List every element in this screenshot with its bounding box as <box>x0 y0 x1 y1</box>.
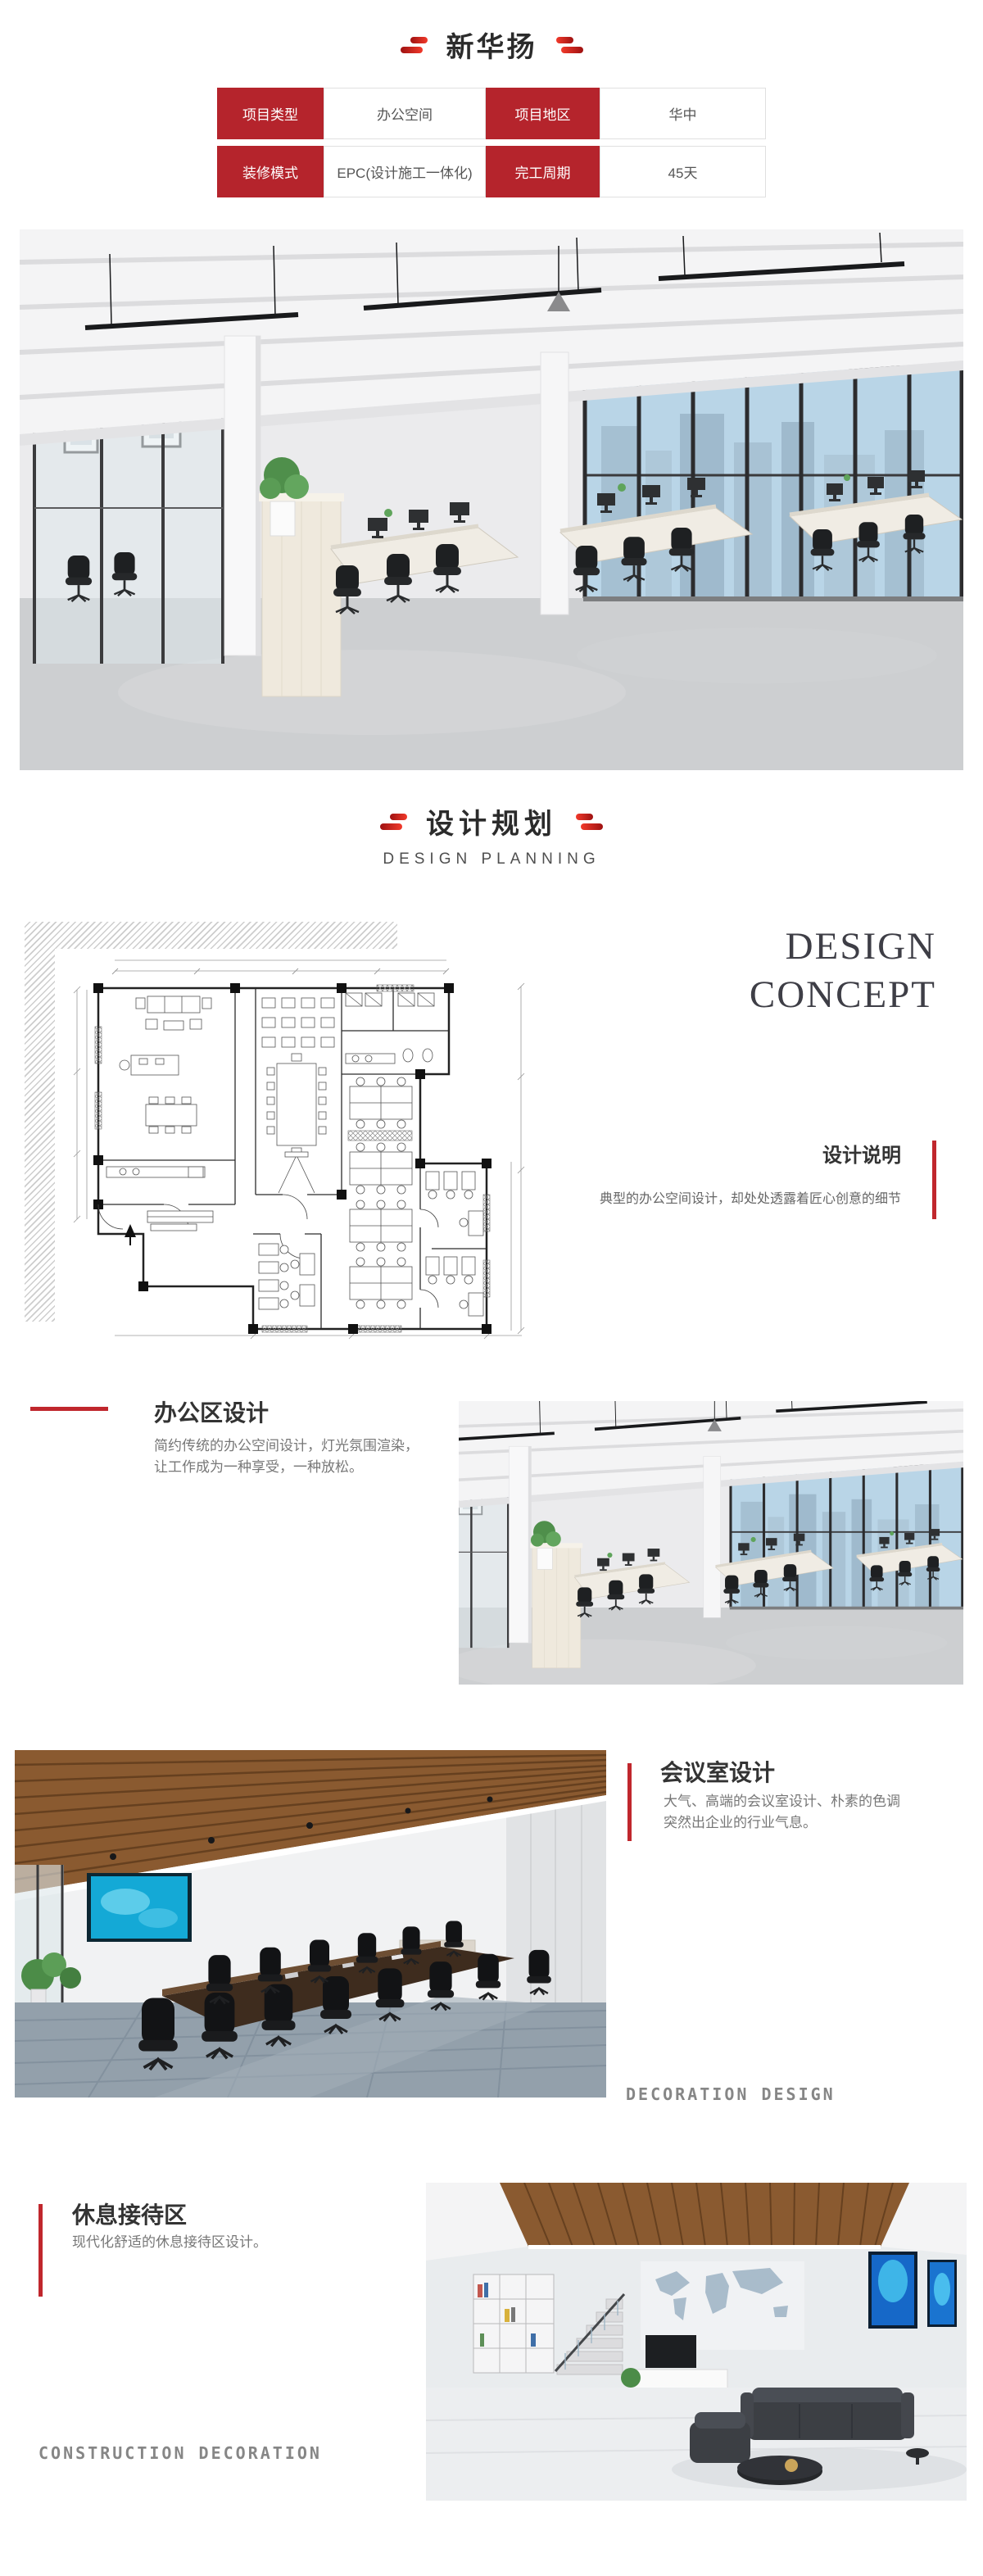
page-header: 新华扬 <box>0 25 983 65</box>
planning-deco-right-icon <box>575 811 603 832</box>
office-area-photo-svg <box>459 1401 963 1685</box>
planning-title-en: DESIGN PLANNING <box>0 850 983 868</box>
design-note-text: 典型的办公空间设计，却处处透露着匠心创意的细节 <box>491 1187 901 1207</box>
info-label-project-type: 项目类型 <box>217 88 324 139</box>
meeting-room-desc-line2: 突然出企业的行业气息。 <box>664 1815 817 1830</box>
office-area-desc-line1: 简约传统的办公空间设计，灯光氛围渲染， <box>154 1438 419 1454</box>
hatch-band-top <box>25 922 397 949</box>
design-concept-title: DESIGN CONCEPT <box>750 923 936 1019</box>
design-note: 设计说明 典型的办公空间设计，却处处透露着匠心创意的细节 <box>491 1139 901 1207</box>
design-concept-line1: DESIGN <box>750 923 936 971</box>
reception-plant <box>621 2368 641 2388</box>
meeting-room-bar <box>627 1763 632 1841</box>
reception-desc: 现代化舒适的休息接待区设计。 <box>72 2232 267 2253</box>
planning-deco-left-icon <box>380 811 408 832</box>
info-value-project-type: 办公空间 <box>324 88 486 139</box>
wall-screen <box>646 2335 696 2368</box>
info-value-mode: EPC(设计施工一体化) <box>324 146 486 197</box>
info-label-region: 项目地区 <box>486 88 600 139</box>
case-study-page: 新华扬 项目类型 办公空间 项目地区 华中 装修模式 EPC(设计施工一体化) … <box>0 0 983 2576</box>
meeting-room-photo <box>15 1750 606 2098</box>
hero-office-photo <box>20 229 963 770</box>
office-area-photo <box>459 1401 963 1685</box>
meeting-room-desc-line1: 大气、高端的会议室设计、朴素的色调 <box>664 1794 900 1809</box>
info-value-duration: 45天 <box>600 146 766 197</box>
reception-svg <box>426 2183 967 2501</box>
info-label-duration: 完工周期 <box>486 146 600 197</box>
project-info-table: 项目类型 办公空间 项目地区 华中 装修模式 EPC(设计施工一体化) 完工周期… <box>217 88 766 197</box>
bookshelf <box>473 2274 554 2373</box>
meeting-room-desc: 大气、高端的会议室设计、朴素的色调 突然出企业的行业气息。 <box>664 1791 900 1834</box>
office-area-desc-line2: 让工作成为一种享受，一种放松。 <box>154 1459 363 1475</box>
windows <box>583 365 963 601</box>
floor-plan-svg <box>66 949 537 1344</box>
design-concept-line2: CONCEPT <box>750 971 936 1019</box>
floor-plan <box>66 949 537 1344</box>
reception-photo <box>426 2183 967 2501</box>
meeting-room-svg <box>15 1750 606 2098</box>
reception-bar <box>39 2204 43 2297</box>
reception-heading: 休息接待区 <box>72 2197 187 2230</box>
page-title: 新华扬 <box>446 25 537 65</box>
decoration-design-caption: DECORATION DESIGN <box>626 2084 836 2104</box>
office-scene-svg <box>20 229 963 770</box>
office-scene <box>20 229 963 770</box>
info-value-region: 华中 <box>600 88 766 139</box>
hatch-band-left <box>25 922 55 1322</box>
presentation-screen <box>87 1873 192 1942</box>
office-area-heading: 办公区设计 <box>154 1395 269 1428</box>
title-deco-left-icon <box>401 34 428 56</box>
blue-artworks <box>868 2252 957 2329</box>
office-area-desc: 简约传统的办公空间设计，灯光氛围渲染， 让工作成为一种享受，一种放松。 <box>154 1435 419 1478</box>
carpet <box>15 1996 606 2098</box>
meeting-room-heading: 会议室设计 <box>660 1755 775 1788</box>
office-area-line <box>30 1407 108 1411</box>
planning-title-cn: 设计规划 <box>426 801 557 841</box>
construction-decoration-caption: CONSTRUCTION DECORATION <box>39 2443 322 2463</box>
planning-section-header: 设计规划 <box>0 801 983 841</box>
design-note-heading: 设计说明 <box>491 1139 901 1168</box>
info-label-mode: 装修模式 <box>217 146 324 197</box>
title-deco-right-icon <box>555 34 583 56</box>
design-note-bar <box>932 1141 936 1219</box>
